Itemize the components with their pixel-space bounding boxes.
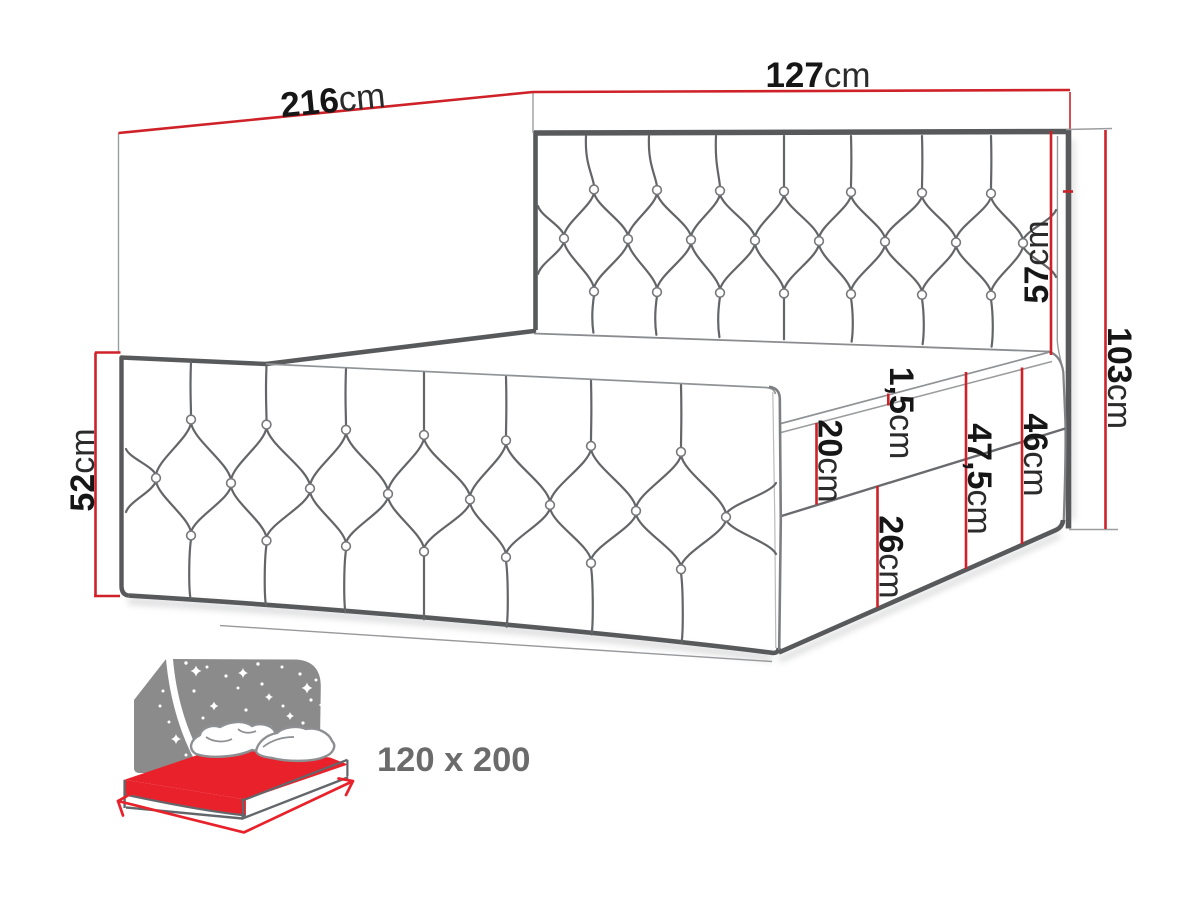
svg-text:20cm: 20cm xyxy=(811,419,849,502)
svg-text:46cm: 46cm xyxy=(1016,413,1054,496)
svg-text:1,5cm: 1,5cm xyxy=(882,367,920,460)
svg-text:103cm: 103cm xyxy=(1100,327,1138,429)
svg-text:26cm: 26cm xyxy=(872,515,910,598)
svg-text:127cm: 127cm xyxy=(765,56,870,95)
svg-text:120 x 200: 120 x 200 xyxy=(377,741,530,779)
svg-text:52cm: 52cm xyxy=(64,428,102,511)
svg-text:47,5cm: 47,5cm xyxy=(960,423,998,535)
svg-text:57cm: 57cm xyxy=(1018,220,1056,303)
